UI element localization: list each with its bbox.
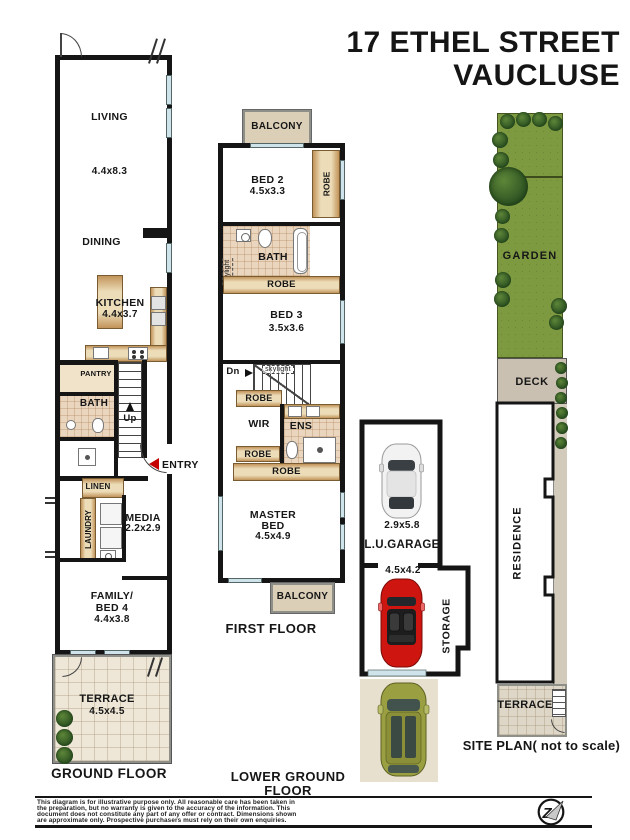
up-arrow-icon — [126, 402, 134, 411]
footer-rule-top — [35, 796, 592, 798]
bush-icon — [492, 132, 508, 148]
basin-icon — [306, 406, 320, 417]
robe2-label: ROBE — [236, 394, 282, 403]
basin-icon — [66, 420, 76, 430]
living-label: LIVING — [56, 112, 163, 123]
garden-label: GARDEN — [497, 251, 563, 263]
bed2-label: BED 2 — [223, 175, 312, 186]
window-mark — [45, 502, 55, 504]
robe1-label: ROBE — [223, 280, 340, 290]
car-white-icon — [379, 442, 424, 520]
garage-dims1: 2.9x5.8 — [371, 521, 433, 532]
bush-icon — [56, 710, 73, 727]
linen-label: LINEN — [77, 483, 119, 491]
site-terrace-label: TERRACE — [490, 700, 560, 712]
garage-label: L.U.GARAGE — [358, 539, 446, 551]
family-label1: FAMILY/ — [60, 591, 164, 602]
window — [218, 496, 223, 551]
bed3-dims: 3.5x3.6 — [228, 324, 345, 335]
page-title: 17 ETHEL STREET VAUCLUSE — [250, 26, 620, 92]
entry-label: ENTRY — [162, 459, 206, 471]
family-dims: 4.4x3.8 — [60, 615, 164, 626]
window — [340, 524, 345, 550]
window — [340, 160, 345, 200]
kitchen-dims: 4.4x3.7 — [75, 310, 165, 321]
bush-icon — [493, 152, 509, 168]
kitchen-label: KITCHEN — [75, 298, 165, 309]
wall-segment — [122, 576, 172, 580]
car-olive-icon — [377, 681, 430, 778]
footer-rule-bottom — [35, 825, 592, 828]
garage-dims2: 4.5x4.2 — [372, 566, 434, 577]
door-arc — [60, 33, 82, 57]
bush-icon — [516, 112, 531, 127]
bush-icon — [556, 422, 568, 434]
window-mark — [45, 497, 55, 499]
window-mark — [45, 556, 55, 558]
toilet-icon — [258, 229, 272, 248]
wall-segment — [143, 228, 172, 238]
bush-icon — [532, 112, 547, 127]
dryer-icon — [100, 527, 122, 549]
skylight-stair-wrap: skylight — [254, 366, 302, 373]
garage-door — [368, 670, 426, 676]
residence-label: RESIDENCE — [512, 506, 524, 579]
bush-icon — [548, 116, 563, 131]
tree-icon — [489, 167, 528, 206]
first-floor-label: FIRST FLOOR — [206, 622, 336, 636]
shower-icon — [303, 437, 336, 463]
window — [166, 108, 172, 138]
bathtub-icon — [293, 228, 308, 274]
robe4-label: ROBE — [233, 467, 340, 477]
window-mark — [45, 551, 55, 553]
dn-arrow-icon — [245, 369, 253, 377]
shower-icon — [78, 448, 96, 466]
site-stairs — [552, 689, 566, 717]
window — [228, 578, 262, 583]
washer-icon — [100, 503, 122, 525]
toilet-icon — [92, 418, 104, 433]
bush-icon — [495, 209, 510, 224]
window — [250, 143, 304, 148]
agency-logo-icon: Z — [536, 797, 566, 827]
floorplan-page: 17 ETHEL STREET VAUCLUSE LIVING 4.4x8.3 … — [0, 0, 630, 840]
robe3-label: ROBE — [236, 450, 280, 459]
title-line1: 17 ETHEL STREET — [250, 26, 620, 59]
sink-icon — [93, 347, 109, 359]
bush-icon — [549, 315, 564, 330]
bush-icon — [556, 407, 568, 419]
ens-label: ENS — [273, 421, 329, 432]
window — [166, 75, 172, 105]
entry-arrow-icon — [149, 458, 159, 470]
pantry-label: PANTRY — [68, 370, 124, 378]
disclaimer-line4: are approximate only. Prospective purcha… — [37, 818, 317, 824]
terrace-label: TERRACE — [48, 694, 166, 706]
up-label: Up — [116, 414, 144, 424]
door-leaf — [60, 33, 62, 57]
residence-outline — [495, 401, 557, 686]
toilet-icon — [286, 441, 298, 459]
laundry-label: LAUNDRY — [84, 510, 93, 549]
bush-icon — [556, 377, 568, 389]
title-line2: VAUCLUSE — [250, 59, 620, 92]
family-label2: BED 4 — [60, 603, 164, 614]
site-plan-label: SITE PLAN( not to scale) — [455, 738, 620, 753]
cooktop-icon — [128, 347, 148, 360]
bush-icon — [551, 298, 567, 314]
window — [166, 243, 172, 273]
balcony-top-label: BALCONY — [243, 122, 311, 133]
wall-segment — [60, 437, 118, 441]
media-dims: 2.2x2.9 — [120, 524, 166, 535]
bath-label: BATH — [66, 399, 122, 410]
bush-icon — [495, 272, 511, 288]
window — [340, 300, 345, 344]
robe-side-label: ROBE — [321, 172, 331, 197]
bush-icon — [494, 228, 509, 243]
lower-ground-label: LOWER GROUND FLOOR — [208, 770, 368, 797]
laundry-label-wrap: LAUNDRY — [80, 498, 96, 560]
bush-icon — [56, 747, 73, 764]
car-red-icon — [378, 577, 425, 669]
bed2-dims: 4.5x3.3 — [223, 187, 312, 198]
bush-icon — [494, 291, 510, 307]
dining-label: DINING — [48, 237, 155, 248]
bush-icon — [555, 362, 567, 374]
wall-segment — [60, 558, 126, 562]
balcony-bottom-label: BALCONY — [271, 592, 334, 603]
basin-icon — [288, 406, 302, 417]
ground-floor-label: GROUND FLOOR — [34, 767, 184, 781]
bush-icon — [56, 729, 73, 746]
master-dims: 4.5x4.9 — [206, 532, 340, 543]
bush-icon — [500, 114, 515, 129]
dn-label: Dn — [222, 367, 244, 377]
bed3-label: BED 3 — [228, 310, 345, 321]
bath-ff-label: BATH — [233, 252, 313, 263]
living-dims: 4.4x8.3 — [56, 167, 163, 178]
skylight-stair-label: skylight — [262, 365, 294, 374]
storage-label: STORAGE — [441, 598, 453, 653]
basin-icon — [236, 229, 251, 242]
window — [340, 492, 345, 518]
